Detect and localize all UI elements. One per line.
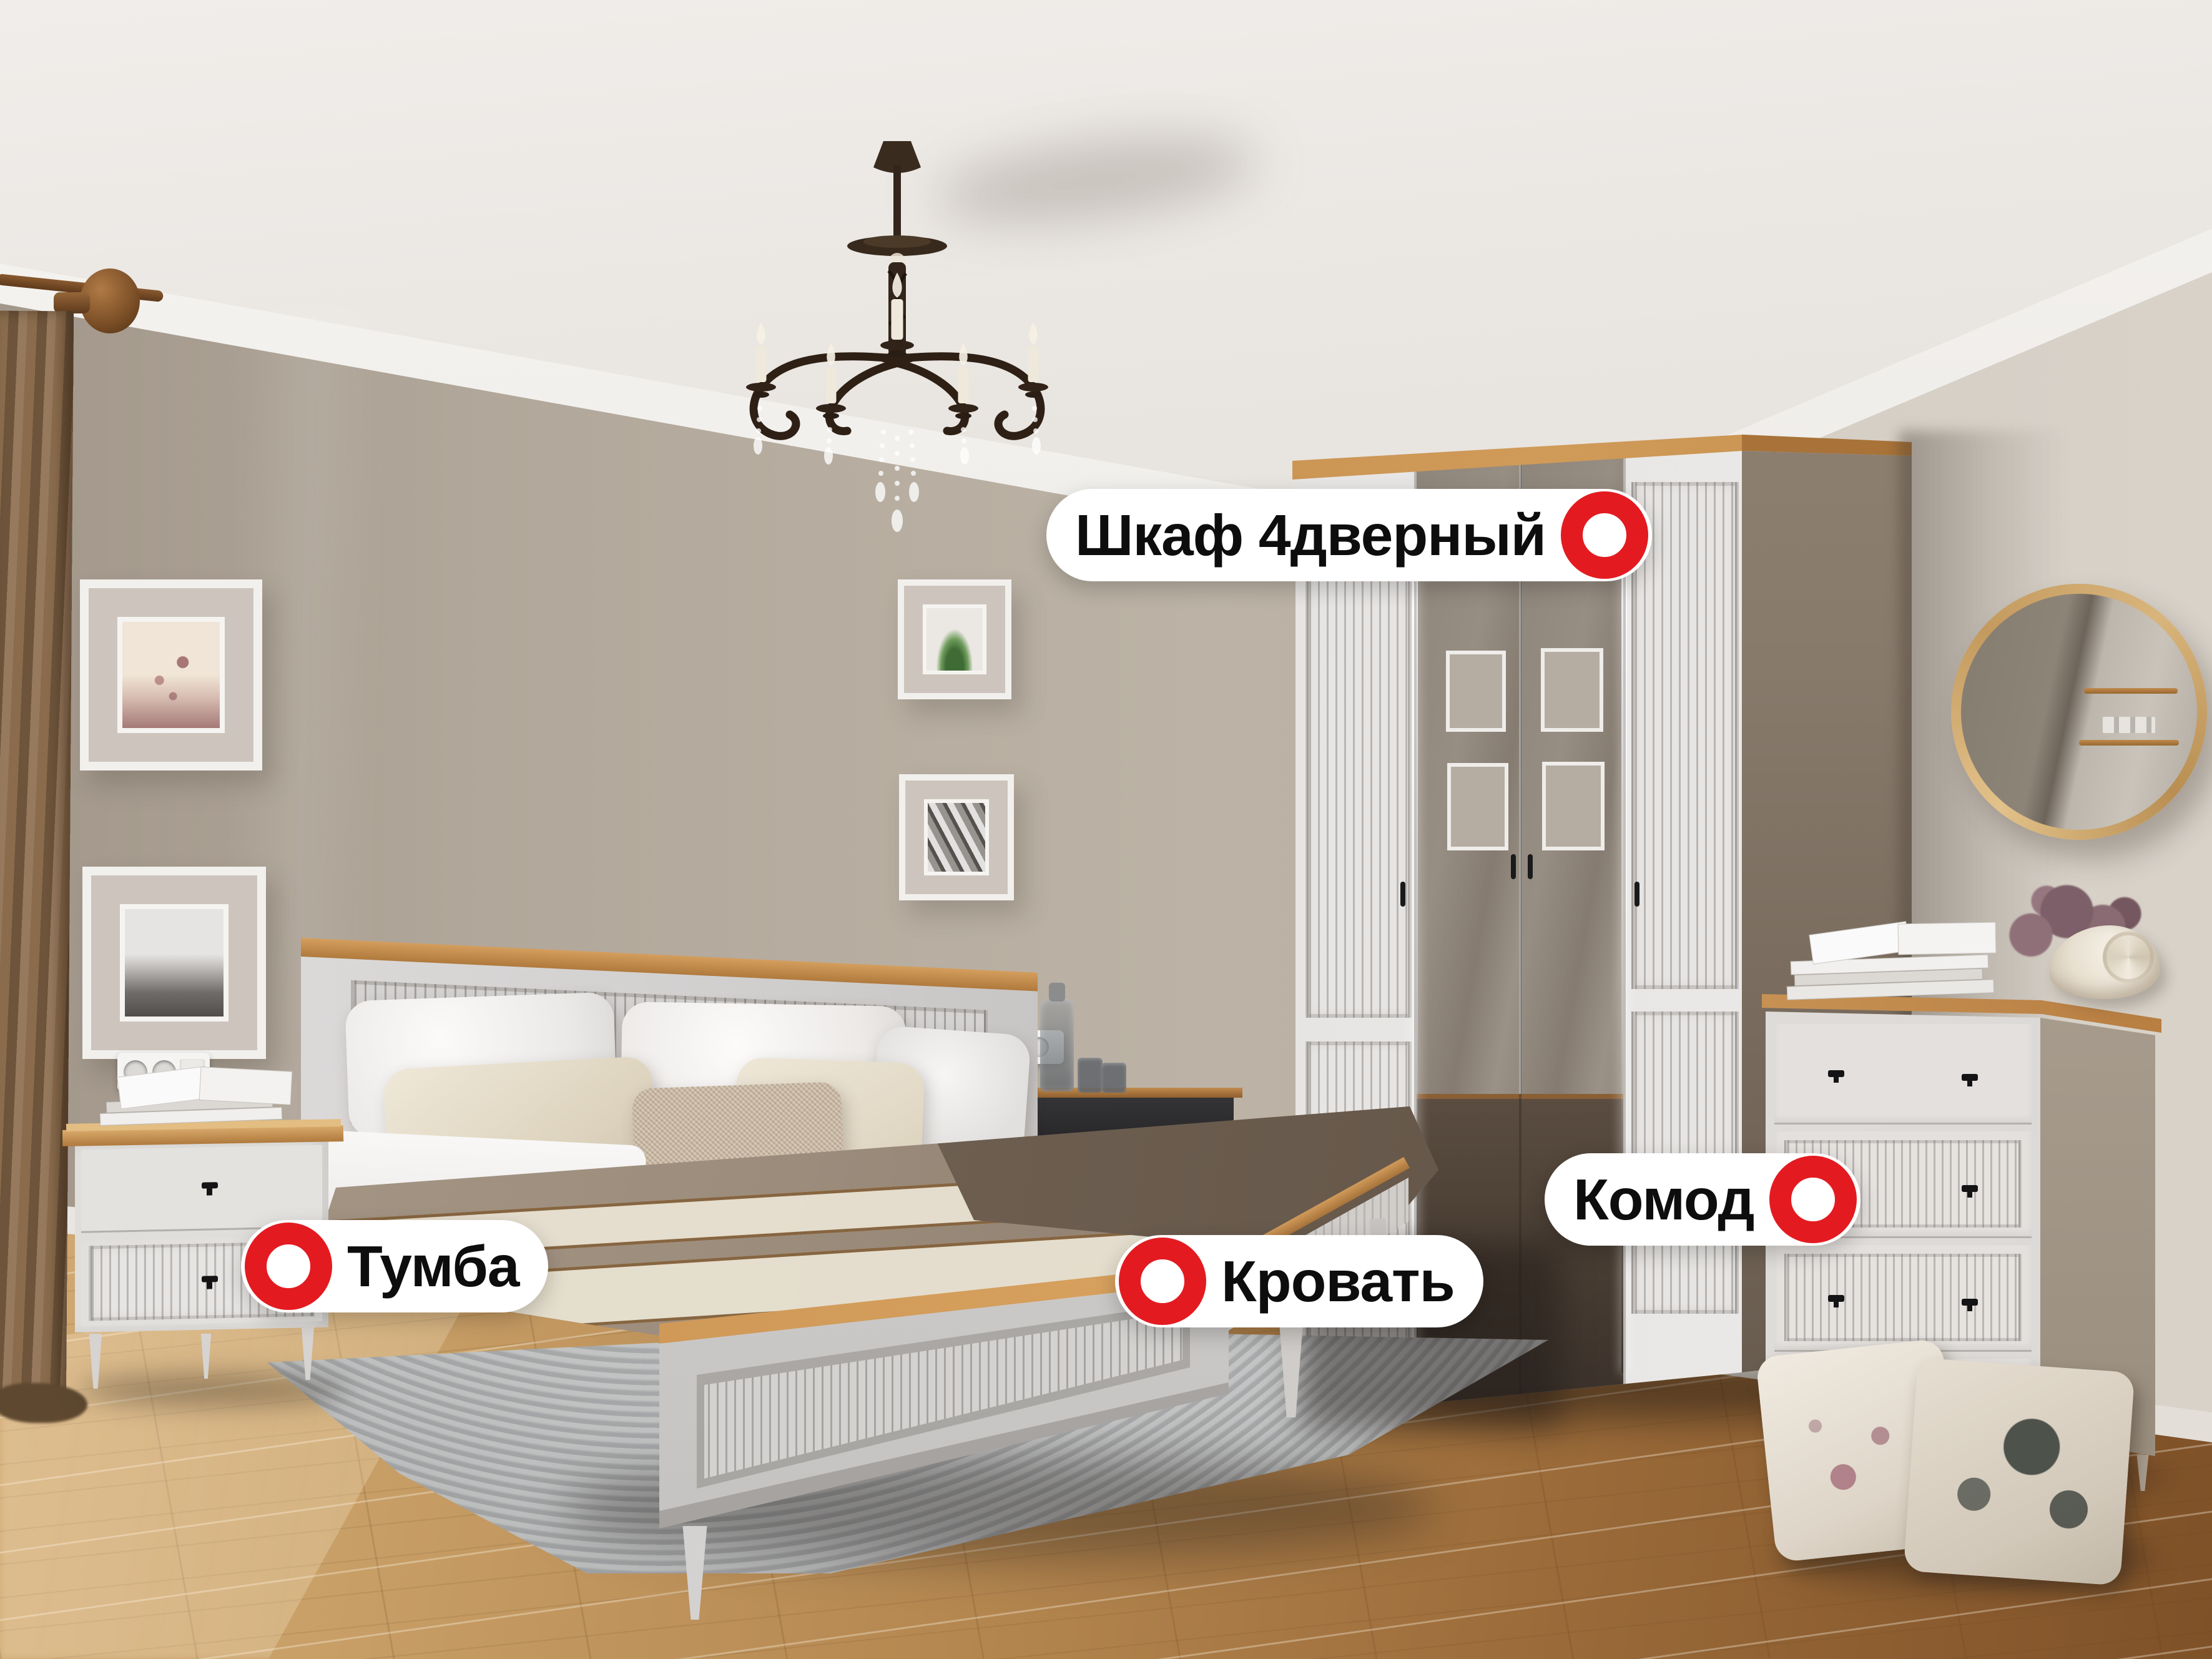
bedroom-scene: Шкаф 4дверный Комод Тумба Кровать — [0, 0, 2212, 1659]
callout-nightstand[interactable]: Тумба — [241, 1220, 548, 1312]
drinking-glass — [1101, 1063, 1126, 1093]
picture-succulent — [923, 604, 986, 674]
wardrobe-handle — [1511, 854, 1516, 879]
drawer-handle — [202, 1276, 218, 1282]
mirror-glass — [1961, 594, 2197, 830]
drawer-handle — [1828, 1295, 1844, 1302]
nightstand-drawer — [81, 1145, 322, 1231]
floor-pillow-botanical — [1903, 1357, 2135, 1585]
mirror-reflection-shelf — [2079, 740, 2179, 746]
callout-nightstand-label: Тумба — [347, 1233, 519, 1300]
curtain-rod-bracket — [54, 292, 90, 313]
hotspot-ring-icon[interactable] — [1769, 1156, 1857, 1243]
hotspot-ring-icon[interactable] — [245, 1223, 332, 1310]
picture-flowers — [117, 617, 225, 733]
picture-frame-flowers — [80, 579, 262, 770]
drawer-fluted-panel — [1784, 1254, 2022, 1341]
open-book — [1898, 922, 1997, 955]
hotspot-ring-icon[interactable] — [1561, 491, 1648, 579]
callout-wardrobe[interactable]: Шкаф 4дверный — [1046, 489, 1652, 581]
wardrobe-handle — [1400, 882, 1405, 907]
callout-dresser-label: Комод — [1573, 1166, 1754, 1233]
chandelier — [697, 139, 1097, 582]
open-book — [199, 1066, 293, 1105]
mirror-reflection-shelf — [2084, 688, 2178, 694]
chest-drawer — [1774, 1024, 2032, 1123]
drinking-glass — [1078, 1058, 1103, 1093]
callout-wardrobe-label: Шкаф 4дверный — [1075, 502, 1546, 569]
picture-frame-mountain — [82, 867, 266, 1059]
drawer-handle — [202, 1182, 218, 1189]
wall-mirror — [1951, 584, 2207, 840]
drawer-handle — [1828, 1070, 1844, 1077]
mirror-reflection-books — [2103, 717, 2155, 733]
drawer-handle — [1962, 1299, 1978, 1306]
mirror-reflection-frame — [1446, 651, 1506, 732]
chandelier-candles — [746, 272, 1048, 419]
wardrobe-handle — [1528, 854, 1533, 879]
callout-bed[interactable]: Кровать — [1115, 1235, 1483, 1327]
mirror-reflection-frame — [1541, 648, 1603, 732]
shell-vase-spiral — [2103, 932, 2154, 983]
wardrobe-handle — [1634, 882, 1639, 907]
hotspot-ring-icon[interactable] — [1119, 1238, 1206, 1325]
mirror-reflection-frame — [1447, 763, 1508, 850]
picture-mountain — [120, 904, 229, 1021]
wardrobe-door-panel — [1305, 507, 1412, 1018]
water-carafe — [1040, 999, 1074, 1091]
picture-palm-leaf — [924, 799, 989, 875]
door-gap — [1623, 438, 1626, 1412]
curtain — [0, 311, 74, 1404]
drawer-handle — [1962, 1185, 1978, 1192]
chest-drawer — [1774, 1245, 2032, 1350]
callout-bed-label: Кровать — [1221, 1248, 1455, 1315]
mirror-reflection-frame — [1542, 762, 1605, 850]
callout-dresser[interactable]: Комод — [1545, 1153, 1861, 1246]
drawer-handle — [1962, 1074, 1978, 1081]
picture-frame-palm-leaf — [899, 774, 1014, 900]
wardrobe-door-panel — [1631, 482, 1739, 989]
picture-frame-succulent — [898, 579, 1011, 699]
